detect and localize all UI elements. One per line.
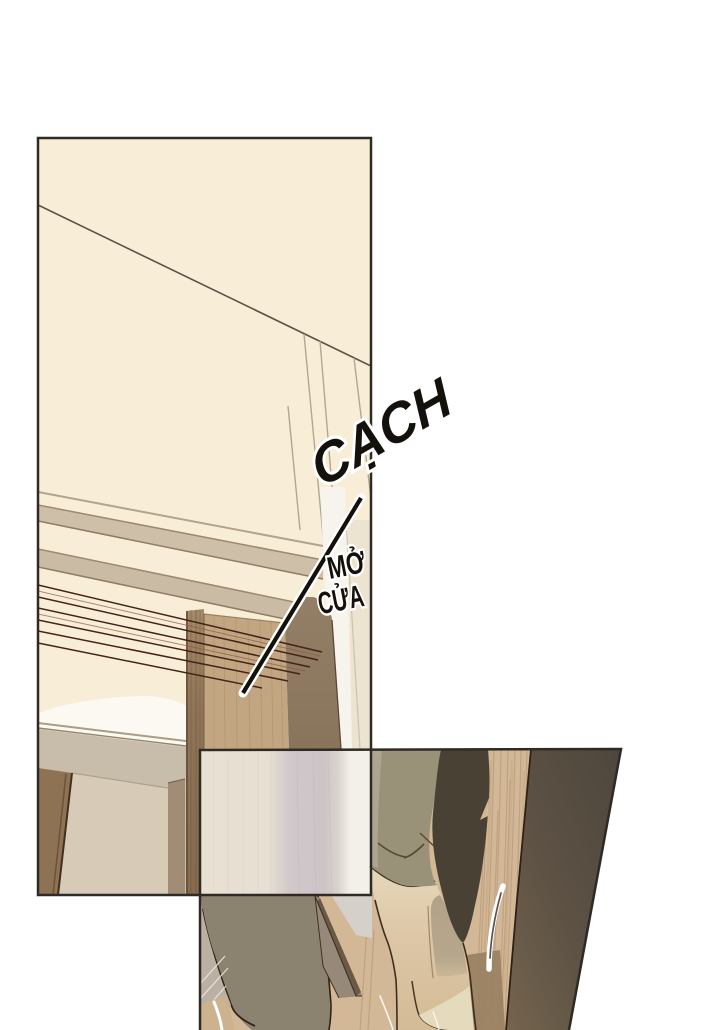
svg-text:MỞ: MỞ (324, 543, 369, 586)
